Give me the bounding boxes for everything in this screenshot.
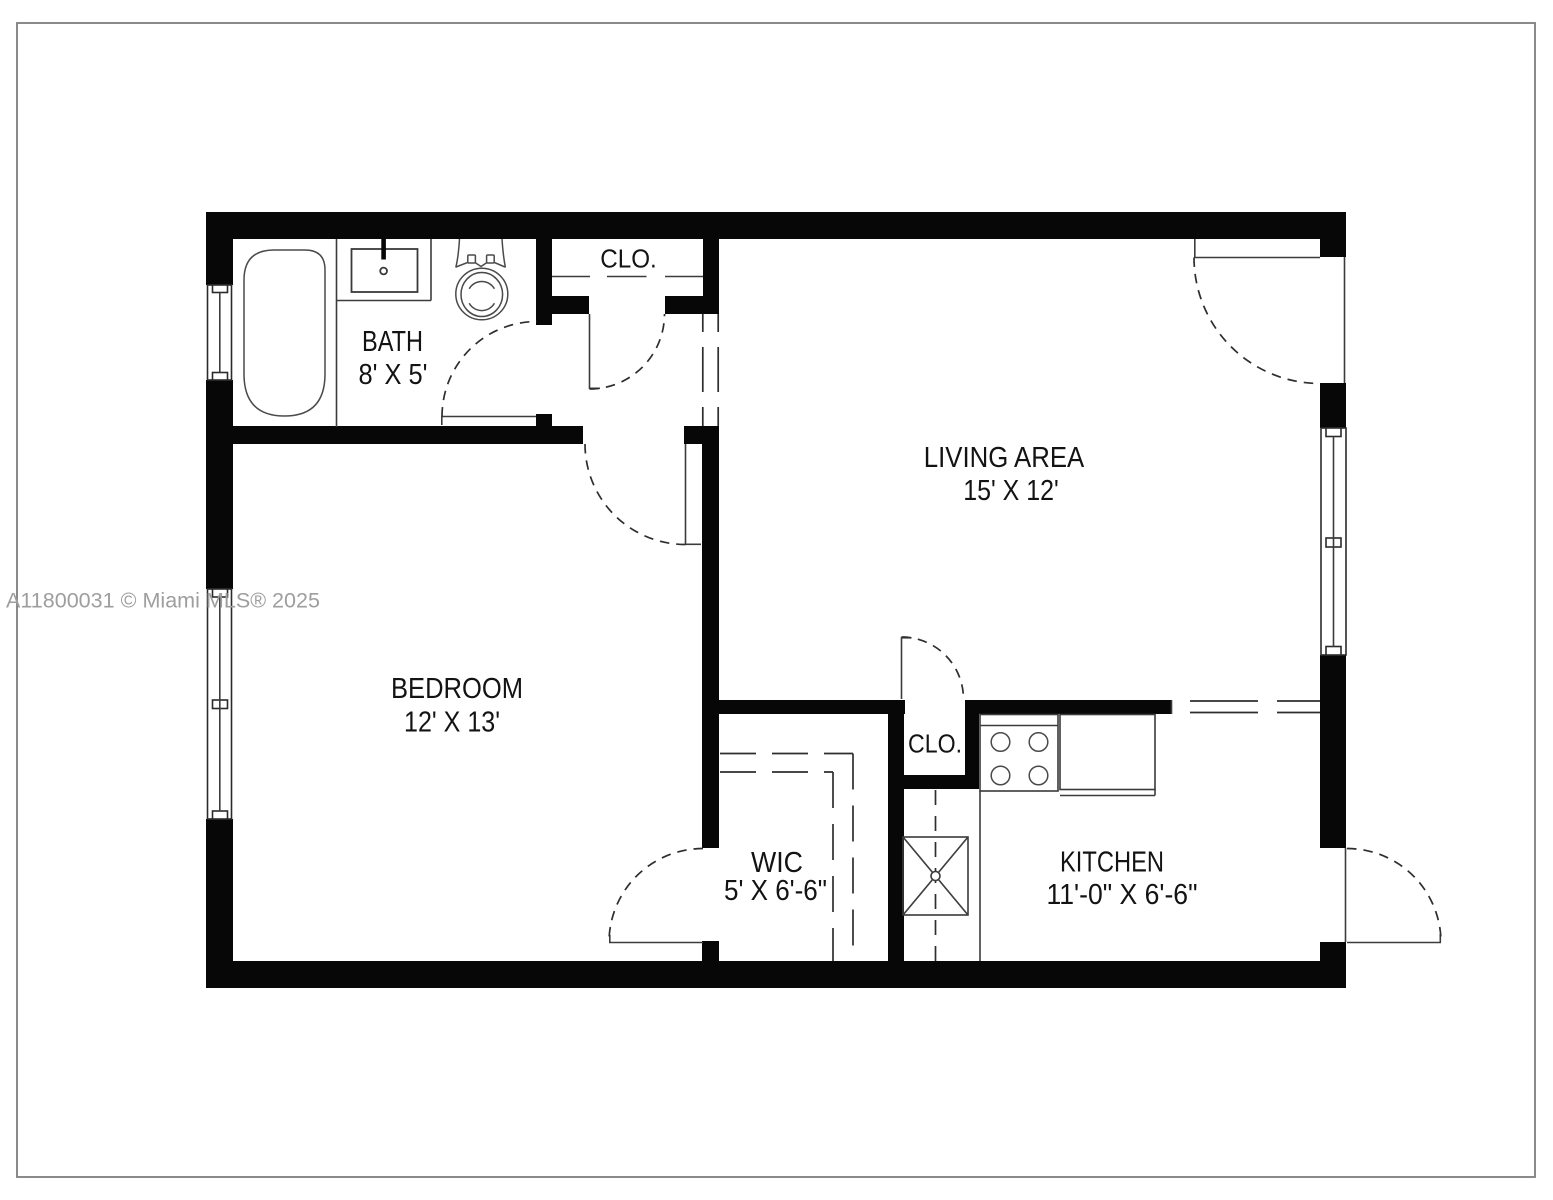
svg-text:5' X 6'-6": 5' X 6'-6" bbox=[724, 875, 827, 907]
svg-text:11'-0" X 6'-6": 11'-0" X 6'-6" bbox=[1047, 879, 1198, 911]
svg-text:15' X 12': 15' X 12' bbox=[963, 475, 1059, 507]
svg-text:KITCHEN: KITCHEN bbox=[1060, 847, 1164, 879]
svg-text:BATH: BATH bbox=[362, 326, 423, 358]
svg-text:LIVING AREA: LIVING AREA bbox=[924, 442, 1085, 474]
svg-text:12' X 13': 12' X 13' bbox=[404, 707, 500, 739]
svg-text:8' X 5': 8' X 5' bbox=[359, 359, 428, 391]
svg-text:CLO.: CLO. bbox=[600, 244, 657, 274]
svg-text:CLO.: CLO. bbox=[908, 729, 962, 759]
svg-text:BEDROOM: BEDROOM bbox=[391, 673, 523, 705]
svg-text:A11800031 © Miami MLS® 2025: A11800031 © Miami MLS® 2025 bbox=[6, 589, 320, 613]
